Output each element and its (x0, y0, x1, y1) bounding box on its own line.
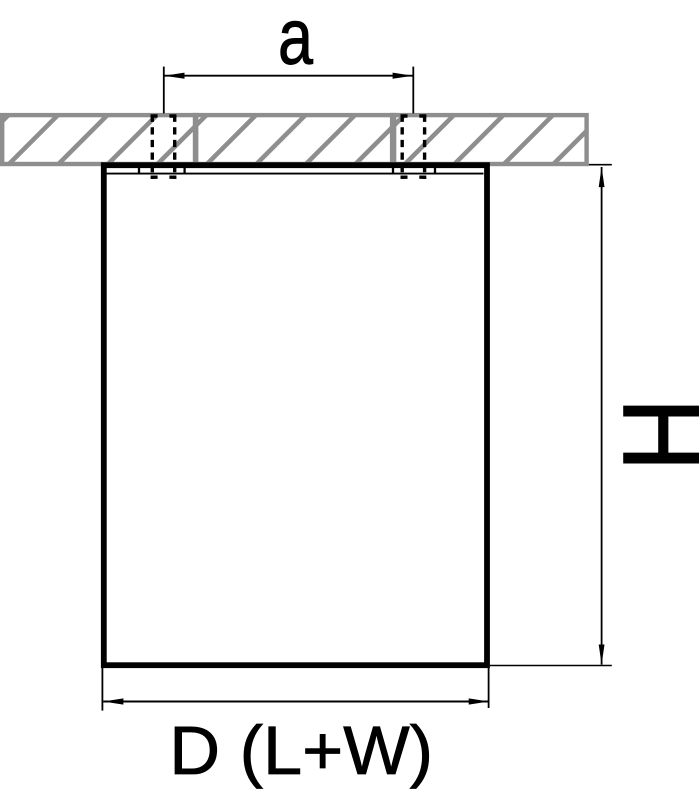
svg-text:D (L+W): D (L+W) (169, 712, 433, 789)
svg-text:H: H (600, 398, 699, 471)
svg-text:a: a (278, 0, 313, 81)
